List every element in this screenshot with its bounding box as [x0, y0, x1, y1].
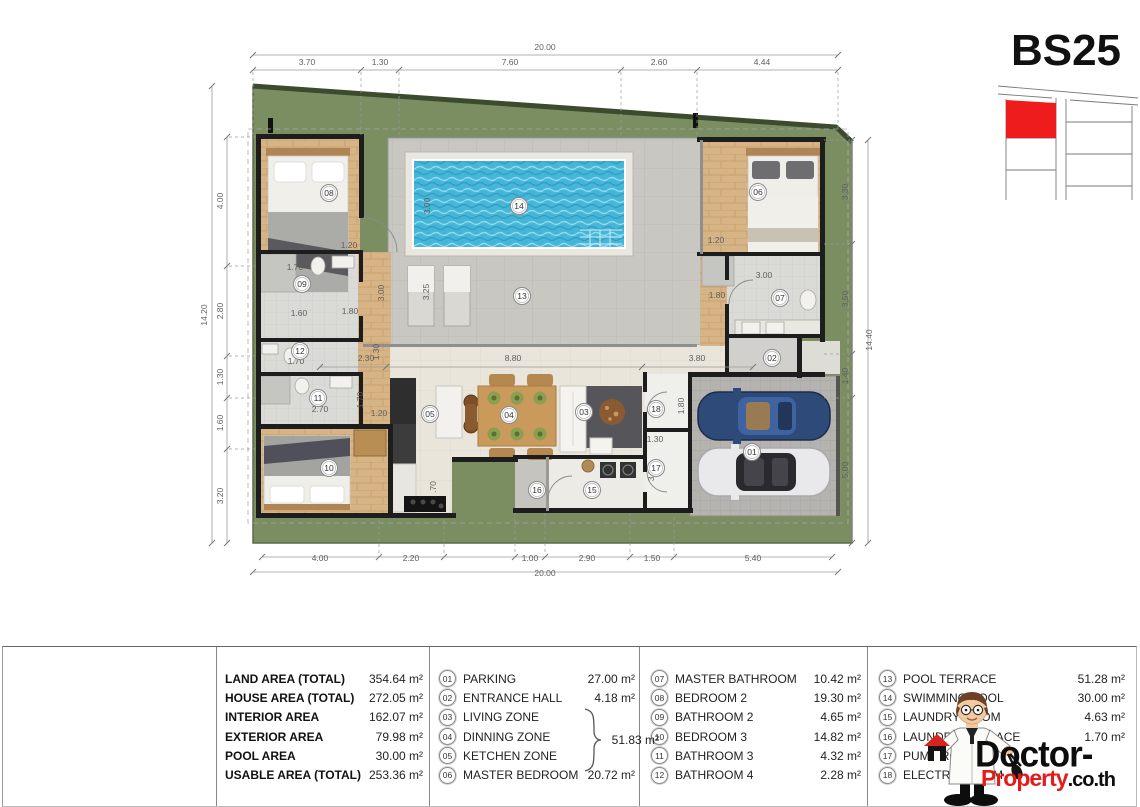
- area-value: 354.64 m²: [369, 672, 423, 686]
- svg-text:02: 02: [767, 353, 777, 363]
- dim-label-interior: 1.20: [708, 235, 725, 245]
- room-number-badge: 16: [879, 728, 896, 745]
- svg-text:17: 17: [651, 463, 661, 473]
- dim-label-bottom: 2.20: [403, 553, 420, 563]
- area-row: LAND AREA (TOTAL)354.64 m²: [225, 669, 423, 688]
- room-marker-12: 12: [292, 343, 309, 360]
- room-number-badge: 06: [439, 767, 456, 784]
- room-row-02: 02ENTRANCE HALL4.18 m²: [439, 688, 635, 707]
- room-number-badge: 02: [439, 689, 456, 706]
- room-name: BATHROOM 4: [675, 768, 820, 782]
- group-brace: [583, 707, 603, 773]
- room-marker-08: 08: [321, 185, 338, 202]
- area-row: USABLE AREA (TOTAL)253.36 m²: [225, 765, 423, 784]
- room-name: BATHROOM 3: [675, 749, 820, 763]
- area-label: USABLE AREA (TOTAL): [225, 768, 369, 782]
- dim-label-right: 5.00: [840, 461, 850, 478]
- dim-label-top: 3.70: [299, 57, 316, 67]
- sliding-door-master: [700, 140, 703, 254]
- room-marker-15: 15: [584, 482, 601, 499]
- room-area: 27.00 m²: [588, 672, 635, 686]
- area-row: EXTERIOR AREA79.98 m²: [225, 727, 423, 746]
- room-number-badge: 17: [879, 747, 896, 764]
- room-row-01: 01PARKING27.00 m²: [439, 669, 635, 688]
- dim-label-left: 3.20: [215, 487, 225, 504]
- dim-label-left: 4.00: [215, 192, 225, 209]
- dim-label-interior: 1.20: [341, 240, 358, 250]
- room-area: 4.63 m²: [1084, 710, 1125, 724]
- svg-text:01: 01: [747, 447, 757, 457]
- dim-label-left: 2.80: [215, 302, 225, 319]
- room-name: LIVING ZONE: [463, 710, 635, 724]
- svg-text:08: 08: [324, 188, 334, 198]
- room-row-10: 10BEDROOM 314.82 m²: [651, 727, 861, 746]
- room-marker-02: 02: [764, 350, 781, 367]
- dim-label-interior: 3.00: [422, 197, 432, 214]
- room-name: ENTRANCE HALL: [463, 691, 594, 705]
- dim-label-bottom: 4.00: [312, 553, 329, 563]
- room-marker-09: 09: [294, 276, 311, 293]
- dim-label-interior: 1.20: [371, 408, 388, 418]
- room-marker-07: 07: [772, 290, 789, 307]
- room-area: 4.18 m²: [594, 691, 635, 705]
- svg-text:04: 04: [504, 410, 514, 420]
- svg-text:09: 09: [297, 279, 307, 289]
- area-value: 30.00 m²: [376, 749, 423, 763]
- area-label: POOL AREA: [225, 749, 376, 763]
- parking-edge: [836, 376, 840, 516]
- legend-divider: [867, 647, 868, 806]
- room-marker-18: 18: [648, 401, 665, 418]
- dim-label-interior: 8.80: [505, 353, 522, 363]
- dim-label-right: 3.50: [840, 290, 850, 307]
- area-label: EXTERIOR AREA: [225, 730, 376, 744]
- area-label: HOUSE AREA (TOTAL): [225, 691, 369, 705]
- car-blue: [698, 388, 830, 444]
- legend-divider: [639, 647, 640, 806]
- plan-code: BS25: [1000, 26, 1132, 76]
- area-row: HOUSE AREA (TOTAL)272.05 m²: [225, 688, 423, 707]
- dim-label-bottom: 5.40: [745, 553, 762, 563]
- area-value: 79.98 m²: [376, 730, 423, 744]
- dim-label-interior: 1.80: [709, 290, 726, 300]
- room-area: 51.28 m²: [1078, 672, 1125, 686]
- room-number-badge: 04: [439, 728, 456, 745]
- room-row-08: 08BEDROOM 219.30 m²: [651, 688, 861, 707]
- area-summary-table: LAND AREA (TOTAL)354.64 m²HOUSE AREA (TO…: [225, 669, 423, 785]
- room-row-12: 12BATHROOM 42.28 m²: [651, 765, 861, 784]
- room-marker-04: 04: [501, 407, 518, 424]
- dim-label-right: 14.40: [864, 329, 874, 351]
- group-area-value: 51.83 m²: [603, 733, 659, 747]
- room-row-13: 13POOL TERRACE51.28 m²: [879, 669, 1125, 688]
- dim-label-bottom: 1.00: [522, 553, 539, 563]
- room-row-09: 09BATHROOM 24.65 m²: [651, 708, 861, 727]
- dim-label-interior: 3.25: [421, 283, 431, 300]
- svg-text:13: 13: [517, 291, 527, 301]
- dim-label-bottom: 20.00: [534, 568, 556, 578]
- room-marker-01: 01: [744, 444, 761, 461]
- room-marker-11: 11: [310, 390, 327, 407]
- sliding-door-terrace: [363, 344, 697, 347]
- room-number-badge: 15: [879, 709, 896, 726]
- dim-label-left: 14.20: [199, 304, 209, 326]
- room-marker-13: 13: [514, 288, 531, 305]
- legend-divider: [216, 647, 217, 806]
- room-list-col2: 07MASTER BATHROOM10.42 m²08BEDROOM 219.3…: [651, 669, 861, 785]
- room-area: 2.28 m²: [820, 768, 861, 782]
- dim-label-interior: 2.30: [358, 353, 375, 363]
- dim-label-right: 1.40: [840, 367, 850, 384]
- dim-label-top: 1.30: [372, 57, 389, 67]
- area-label: INTERIOR AREA: [225, 710, 369, 724]
- svg-text:15: 15: [587, 485, 597, 495]
- room-marker-14: 14: [511, 198, 528, 215]
- area-value: 272.05 m²: [369, 691, 423, 705]
- svg-text:06: 06: [753, 187, 763, 197]
- room-list-col1: 01PARKING27.00 m²02ENTRANCE HALL4.18 m²0…: [439, 669, 635, 785]
- dim-label-interior: 1.70: [355, 391, 365, 408]
- room-number-badge: 09: [651, 709, 668, 726]
- dim-label-top: 20.00: [534, 42, 556, 52]
- gate-post: [268, 118, 273, 133]
- logo-text-red: Property: [981, 765, 1068, 791]
- dim-label-right: 3.30: [840, 183, 850, 200]
- room-name: BEDROOM 3: [675, 730, 814, 744]
- room-number-badge: 11: [651, 747, 668, 764]
- room-number-badge: 05: [439, 747, 456, 764]
- room-number-badge: 07: [651, 670, 668, 687]
- dim-label-interior: .70: [428, 481, 438, 493]
- room-area: 4.65 m²: [820, 710, 861, 724]
- svg-text:18: 18: [651, 404, 661, 414]
- room-name: BATHROOM 2: [675, 710, 820, 724]
- dim-label-left: 1.30: [215, 368, 225, 385]
- room-name: MASTER BATHROOM: [675, 672, 814, 686]
- dim-label-interior: 1.60: [291, 308, 308, 318]
- dim-label-interior: 1.80: [342, 306, 359, 316]
- area-label: LAND AREA (TOTAL): [225, 672, 369, 686]
- room-row-03: 03LIVING ZONE: [439, 708, 635, 727]
- room-area: 19.30 m²: [814, 691, 861, 705]
- room-marker-05: 05: [422, 406, 439, 423]
- room-row-11: 11BATHROOM 34.32 m²: [651, 746, 861, 765]
- dim-label-left: 1.60: [215, 414, 225, 431]
- dim-label-bottom: 1.50: [644, 553, 661, 563]
- room-name: PARKING: [463, 672, 588, 686]
- room-area: 4.32 m²: [820, 749, 861, 763]
- area-row: INTERIOR AREA162.07 m²: [225, 708, 423, 727]
- dim-label-interior: 1.70: [287, 262, 304, 272]
- room-row-05: 05KETCHEN ZONE: [439, 746, 635, 765]
- dim-label-bottom: 2.90: [579, 553, 596, 563]
- room-marker-10: 10: [321, 460, 338, 477]
- svg-text:05: 05: [425, 409, 435, 419]
- dim-label-top: 7.60: [502, 57, 519, 67]
- sofa-set: [560, 386, 642, 454]
- laundry-divider: [546, 457, 549, 511]
- highlighted-plot: [1006, 100, 1056, 138]
- room-row-06: 06MASTER BEDROOM20.72 m²: [439, 765, 635, 784]
- svg-text:11: 11: [314, 393, 323, 403]
- room-area: 30.00 m²: [1078, 691, 1125, 705]
- room-number-badge: 13: [879, 670, 896, 687]
- dim-label-interior: 3.80: [689, 353, 706, 363]
- dim-label-interior: 1.80: [676, 397, 686, 414]
- svg-text:10: 10: [324, 463, 334, 473]
- svg-text:16: 16: [532, 485, 542, 495]
- page: 20.003.701.307.602.604.4414.204.002.801.…: [0, 0, 1140, 807]
- logo-text-suffix: .co.th: [1068, 769, 1115, 791]
- room-number-badge: 08: [651, 689, 668, 706]
- room-area: 10.42 m²: [814, 672, 861, 686]
- dim-label-interior: 3.00: [376, 284, 386, 301]
- area-row: POOL AREA30.00 m²: [225, 746, 423, 765]
- room-name: KETCHEN ZONE: [463, 749, 635, 763]
- dim-label-interior: 1.30: [647, 434, 664, 444]
- svg-text:12: 12: [295, 346, 305, 356]
- logo-text-line2: Property.co.th: [981, 765, 1115, 792]
- svg-text:03: 03: [579, 407, 589, 417]
- dim-label-top: 4.44: [754, 57, 771, 67]
- dim-label-top: 2.60: [651, 57, 668, 67]
- room-number-badge: 12: [651, 767, 668, 784]
- svg-text:14: 14: [514, 201, 524, 211]
- area-value: 253.36 m²: [369, 768, 423, 782]
- room-name: POOL TERRACE: [903, 672, 1078, 686]
- room-number-badge: 14: [879, 689, 896, 706]
- room-marker-03: 03: [576, 404, 593, 421]
- room-marker-17: 17: [648, 460, 665, 477]
- room-name: BEDROOM 2: [675, 691, 814, 705]
- area-value: 162.07 m²: [369, 710, 423, 724]
- room-number-badge: 01: [439, 670, 456, 687]
- svg-text:07: 07: [775, 293, 785, 303]
- room-marker-16: 16: [529, 482, 546, 499]
- dim-label-interior: 3.00: [756, 270, 773, 280]
- legend-divider: [429, 647, 430, 806]
- room-name: MASTER BEDROOM: [463, 768, 588, 782]
- room-area: 14.82 m²: [814, 730, 861, 744]
- room-row-07: 07MASTER BATHROOM10.42 m²: [651, 669, 861, 688]
- room-number-badge: 18: [879, 767, 896, 784]
- room-number-badge: 03: [439, 709, 456, 726]
- room-marker-06: 06: [750, 184, 767, 201]
- entrance-step: [800, 341, 840, 374]
- car-white: [698, 444, 830, 500]
